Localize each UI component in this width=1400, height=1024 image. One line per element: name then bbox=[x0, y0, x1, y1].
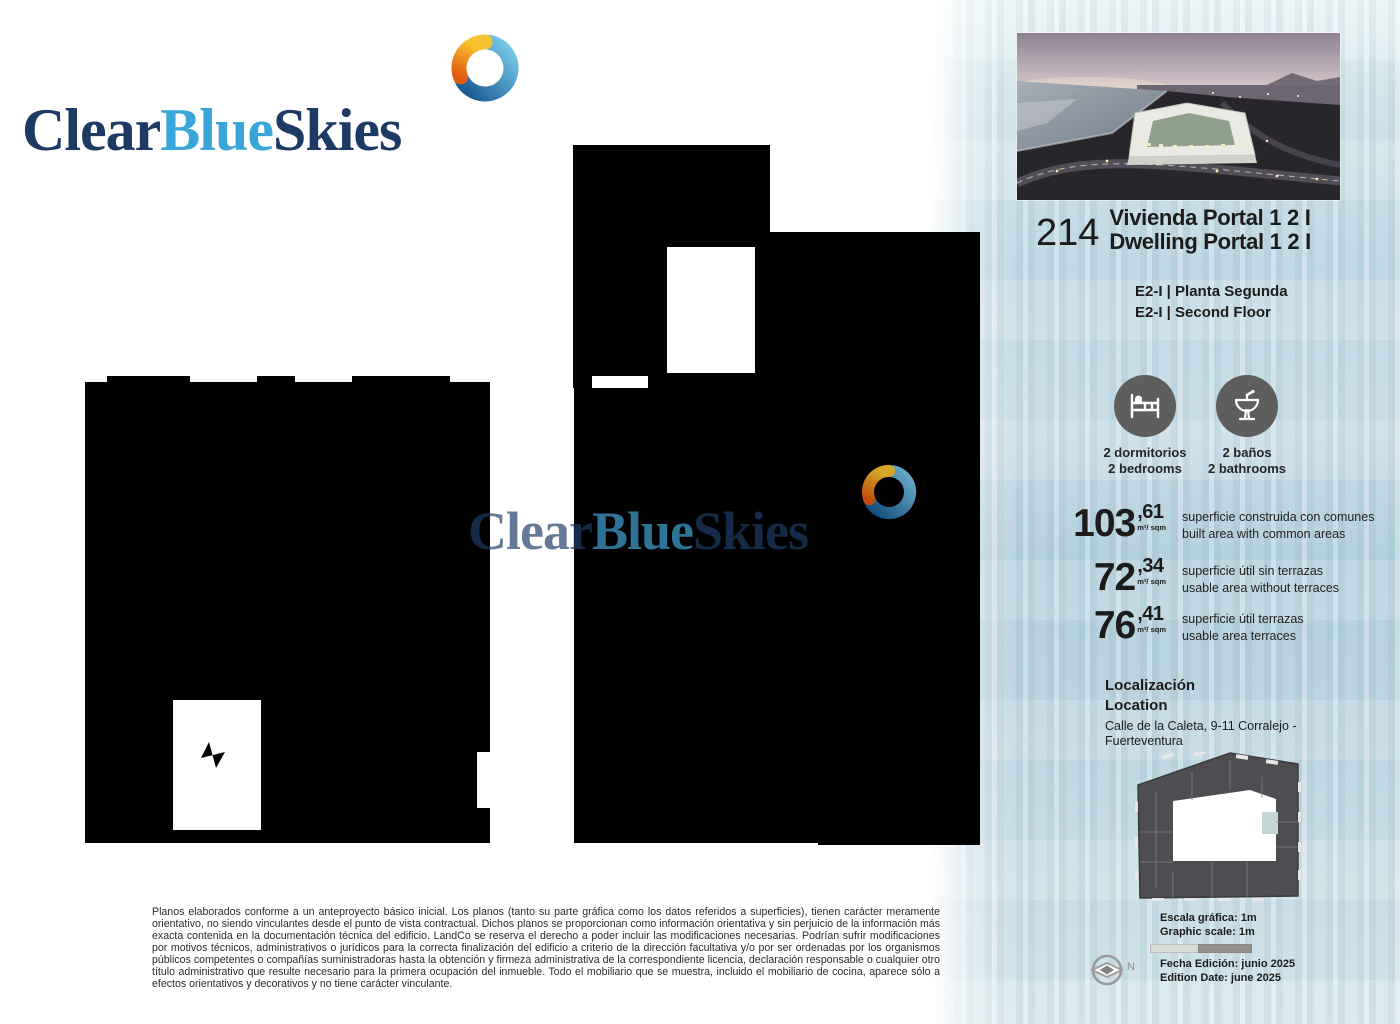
unit-number: 214 bbox=[1036, 212, 1099, 255]
watermark-swirl-icon bbox=[855, 458, 923, 526]
area-unit: m²/ sqm bbox=[1137, 523, 1166, 532]
site-key-plan bbox=[1132, 752, 1302, 904]
floor-es: E2-I | Planta Segunda bbox=[1135, 281, 1288, 302]
brand-word-clear: Clear bbox=[22, 97, 160, 163]
brochure-page: ClearBlueSkies bbox=[0, 0, 1400, 1024]
edition-block: Fecha Edición: junio 2025 Edition Date: … bbox=[1160, 957, 1295, 985]
area-desc-es: superficie útil sin terrazas bbox=[1182, 563, 1339, 580]
scale-bar bbox=[1150, 944, 1252, 953]
edition-date-en: Edition Date: june 2025 bbox=[1160, 971, 1295, 985]
area-unit: m²/ sqm bbox=[1137, 577, 1166, 586]
unit-title-es: Vivienda Portal 1 2 I bbox=[1109, 206, 1311, 230]
area-stat-terrace: 76 ,41 m²/ sqm superficie útil terrazas … bbox=[1058, 608, 1304, 645]
location-block: Localización Location Calle de la Caleta… bbox=[1105, 676, 1365, 749]
compass-icon bbox=[1088, 951, 1126, 989]
hero-photo bbox=[1017, 33, 1340, 200]
north-label: N bbox=[1127, 961, 1135, 973]
area-value: 76 bbox=[1094, 608, 1135, 645]
area-decimal: ,34 bbox=[1137, 556, 1166, 576]
feature-label-es: 2 baños bbox=[1182, 445, 1312, 461]
disclaimer-text: Planos elaborados conforme a un anteproy… bbox=[152, 906, 940, 990]
floor-plan-apartment bbox=[85, 374, 490, 843]
area-desc-es: superficie construida con comunes bbox=[1182, 509, 1374, 526]
brand-word-blue: Blue bbox=[160, 97, 273, 163]
edition-date-es: Fecha Edición: junio 2025 bbox=[1160, 957, 1295, 971]
scale-block: Escala gráfica: 1m Graphic scale: 1m bbox=[1160, 911, 1257, 939]
area-unit: m²/ sqm bbox=[1137, 625, 1166, 634]
area-decimal: ,61 bbox=[1137, 502, 1166, 522]
feature-bathrooms: 2 baños 2 bathrooms bbox=[1182, 375, 1312, 477]
swirl-logo-icon bbox=[443, 26, 527, 110]
floor-plan-terrace bbox=[570, 143, 990, 845]
sink-icon bbox=[1216, 375, 1278, 437]
area-decimal: ,41 bbox=[1137, 604, 1166, 624]
area-desc-en: usable area terraces bbox=[1182, 628, 1304, 645]
area-stat-built: 103 ,61 m²/ sqm superficie construida co… bbox=[1058, 506, 1374, 543]
scale-label-en: Graphic scale: 1m bbox=[1160, 925, 1257, 939]
unit-header: 214 Vivienda Portal 1 2 I Dwelling Porta… bbox=[1036, 206, 1311, 255]
floor-block: E2-I | Planta Segunda E2-I | Second Floo… bbox=[1135, 281, 1288, 323]
location-label-en: Location bbox=[1105, 696, 1365, 716]
watermark-logo: ClearBlueSkies bbox=[468, 500, 808, 562]
feature-label-en: 2 bathrooms bbox=[1182, 461, 1312, 477]
area-value: 72 bbox=[1094, 560, 1135, 597]
area-desc-es: superficie útil terrazas bbox=[1182, 611, 1304, 628]
area-desc-en: usable area without terraces bbox=[1182, 580, 1339, 597]
location-label-es: Localización bbox=[1105, 676, 1365, 696]
unit-title-en: Dwelling Portal 1 2 I bbox=[1109, 230, 1311, 254]
area-value: 103 bbox=[1073, 506, 1135, 543]
area-stat-usable: 72 ,34 m²/ sqm superficie útil sin terra… bbox=[1058, 560, 1339, 597]
bed-icon bbox=[1114, 375, 1176, 437]
location-address: Calle de la Caleta, 9-11 Corralejo - Fue… bbox=[1105, 719, 1365, 749]
scale-label-es: Escala gráfica: 1m bbox=[1160, 911, 1257, 925]
brand-logo: ClearBlueSkies bbox=[22, 96, 401, 165]
floor-en: E2-I | Second Floor bbox=[1135, 302, 1288, 323]
area-desc-en: built area with common areas bbox=[1182, 526, 1374, 543]
brand-word-skies: Skies bbox=[273, 97, 401, 163]
